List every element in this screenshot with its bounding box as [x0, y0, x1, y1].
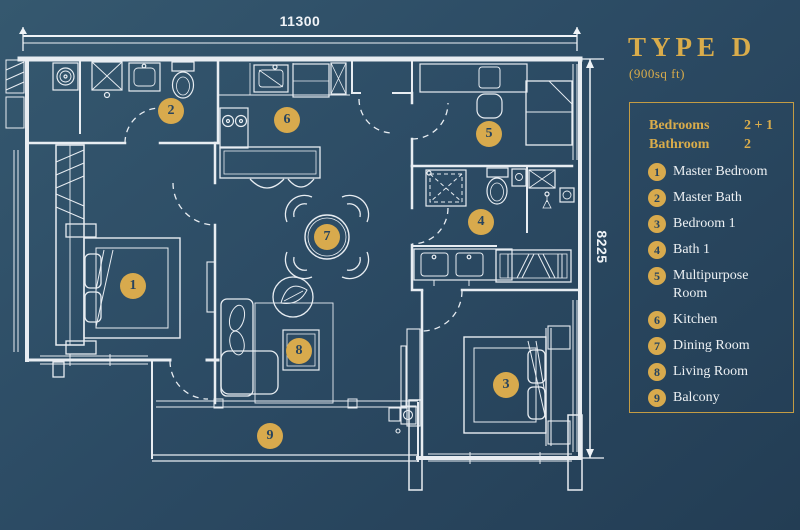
legend-item-number: 7 — [648, 337, 666, 355]
multipurpose-door-arc — [412, 103, 448, 139]
legend-item-label: Living Room — [673, 363, 785, 381]
legend-stat-row: Bathroom2 — [649, 135, 793, 154]
room-marker-3: 3 — [493, 372, 519, 398]
balcony-fixtures — [389, 406, 416, 433]
entry-door-arc — [359, 99, 393, 133]
master-bedroom-door-arc — [173, 183, 215, 225]
interior-walls — [27, 61, 580, 458]
legend-item-8: 8Living Room — [648, 363, 793, 381]
master-bath-fixtures — [53, 62, 194, 98]
legend-item-label: Dining Room — [673, 337, 785, 355]
dimension-width-label: 11300 — [260, 13, 340, 29]
legend-item-number: 8 — [648, 363, 666, 381]
room-marker-7: 7 — [314, 224, 340, 250]
legend-stat-row: Bedrooms2 + 1 — [649, 116, 793, 135]
room-marker-4: 4 — [468, 209, 494, 235]
balcony-door-arc — [170, 361, 208, 399]
room-marker-9: 9 — [257, 423, 283, 449]
legend-item-2: 2Master Bath — [648, 189, 793, 207]
room-marker-1: 1 — [120, 273, 146, 299]
legend-box: Bedrooms2 + 1Bathroom2 1Master Bedroom2M… — [629, 102, 794, 413]
legend-item-1: 1Master Bedroom — [648, 163, 793, 181]
room-marker-5: 5 — [476, 121, 502, 147]
stat-label: Bathroom — [649, 135, 744, 154]
legend-item-9: 9Balcony — [648, 389, 793, 407]
stat-value: 2 + 1 — [744, 116, 773, 135]
legend-item-number: 4 — [648, 241, 666, 259]
room-marker-2: 2 — [158, 98, 184, 124]
living-room-furniture — [221, 277, 420, 426]
master-bath-door-arc — [125, 108, 160, 143]
legend-item-label: Bath 1 — [673, 241, 785, 259]
legend-item-number: 2 — [648, 189, 666, 207]
dimension-height-label: 8225 — [594, 225, 610, 269]
legend-item-label: Multipurpose Room — [673, 267, 785, 303]
room-marker-6: 6 — [274, 107, 300, 133]
legend-item-6: 6Kitchen — [648, 311, 793, 329]
legend-item-number: 6 — [648, 311, 666, 329]
stat-label: Bedrooms — [649, 116, 744, 135]
legend-item-7: 7Dining Room — [648, 337, 793, 355]
legend-item-number: 5 — [648, 267, 666, 285]
legend-item-number: 9 — [648, 389, 666, 407]
master-bedroom-furniture — [56, 145, 215, 354]
bath1-door-arc — [412, 208, 448, 244]
legend-item-label: Balcony — [673, 389, 785, 407]
plan-type-title: TYPE D — [628, 32, 800, 63]
legend-item-label: Master Bedroom — [673, 163, 785, 181]
legend-item-5: 5Multipurpose Room — [648, 267, 793, 303]
legend-item-3: 3Bedroom 1 — [648, 215, 793, 233]
room-marker-8: 8 — [286, 338, 312, 364]
plan-area-subtitle: (900sq ft) — [629, 66, 789, 82]
floorplan-page: 11300 8225 123456789 TYPE D (900sq ft) B… — [0, 0, 800, 530]
bedroom1-door-arc — [422, 291, 462, 331]
legend-item-label: Bedroom 1 — [673, 215, 785, 233]
stat-value: 2 — [744, 135, 751, 154]
legend-item-label: Master Bath — [673, 189, 785, 207]
legend-stats: Bedrooms2 + 1Bathroom2 — [649, 116, 793, 154]
legend-items: 1Master Bedroom2Master Bath3Bedroom 14Ba… — [648, 163, 793, 407]
legend-item-4: 4Bath 1 — [648, 241, 793, 259]
legend-item-label: Kitchen — [673, 311, 785, 329]
legend-item-number: 3 — [648, 215, 666, 233]
legend-item-number: 1 — [648, 163, 666, 181]
bath1-fixtures — [414, 168, 574, 286]
